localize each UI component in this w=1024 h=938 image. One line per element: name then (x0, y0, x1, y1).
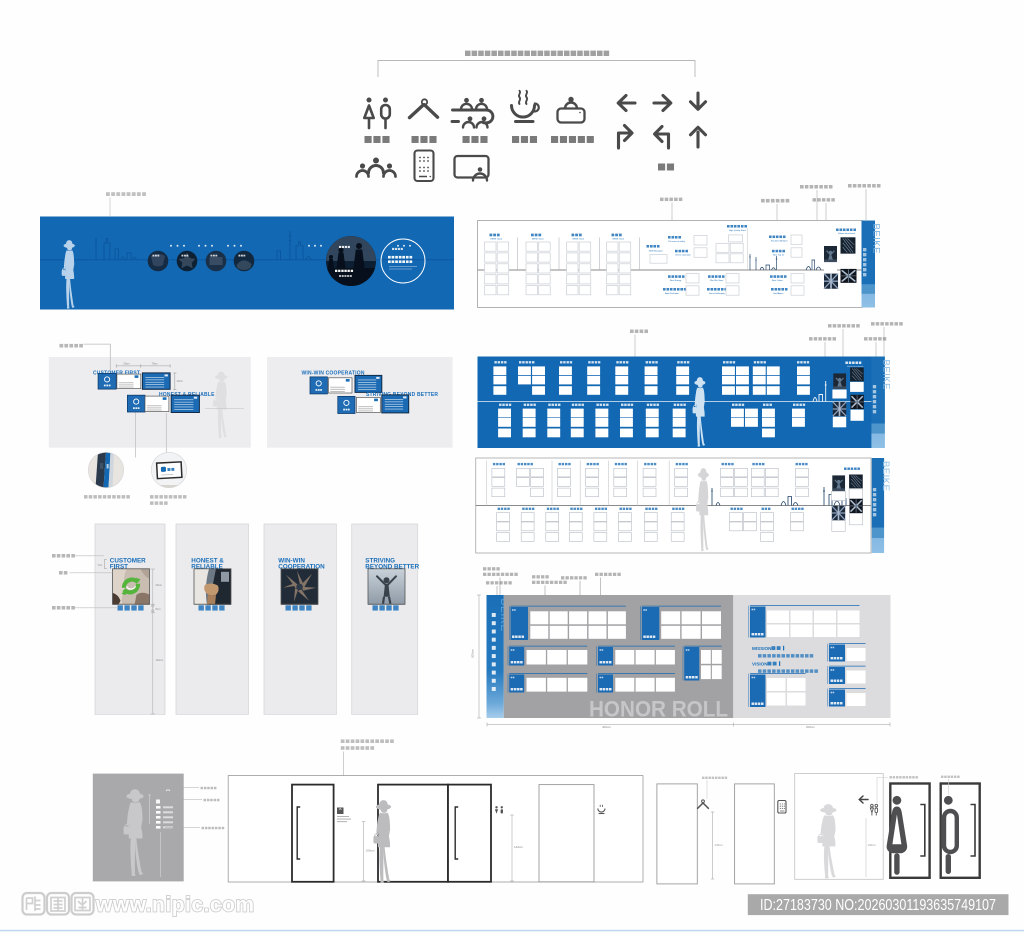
svg-text:www.nipic.com: www.nipic.com (95, 894, 255, 917)
svg-text:7cm: 7cm (98, 564, 103, 567)
svg-text:New Top 10: New Top 10 (773, 255, 785, 257)
svg-text:140cm: 140cm (514, 845, 524, 849)
svg-text:BEIKE: BEIKE (881, 360, 892, 391)
svg-text:Values benchmark: Values benchmark (838, 232, 856, 235)
svg-text:BEIKE Good: BEIKE Good (491, 239, 502, 241)
svg-text:Win Win Store: Win Win Store (710, 279, 724, 282)
svg-text:BEIKE Good: BEIKE Good (573, 239, 584, 241)
svg-text:145cm: 145cm (715, 843, 724, 847)
svg-text:150cm: 150cm (366, 849, 376, 853)
svg-text:5cm: 5cm (155, 607, 161, 611)
svg-text:400cm: 400cm (602, 725, 612, 729)
svg-text:70cm: 70cm (152, 362, 158, 366)
svg-text:The most of ability: The most of ability (668, 240, 686, 243)
svg-text:High Quality Store: High Quality Store (729, 229, 747, 232)
svg-text:Online Operation: Online Operation (675, 254, 692, 257)
svg-text:Well Managed: Well Managed (649, 251, 663, 253)
svg-text:200cm: 200cm (471, 648, 475, 658)
svg-text:Best Online: Best Online (772, 279, 784, 282)
svg-text:40cm: 40cm (177, 379, 183, 383)
svg-text:110cm: 110cm (155, 658, 164, 662)
svg-text:ID:27183730 NO:202603011936357: ID:27183730 NO:20260301193635749107 (760, 897, 996, 914)
svg-text:Excellent Member: Excellent Member (771, 239, 788, 242)
svg-text:Agile Evolution: Agile Evolution (665, 292, 680, 295)
svg-text:HONOR ROLL: HONOR ROLL (589, 697, 728, 722)
svg-text:200cm: 200cm (806, 725, 816, 729)
svg-text:Gold Agent: Gold Agent (773, 292, 784, 295)
svg-text:BEIKE Good: BEIKE Good (532, 239, 543, 241)
svg-text:140cm: 140cm (868, 843, 877, 847)
svg-text:Best Energy: Best Energy (670, 279, 682, 282)
svg-text:Sense Belonging: Sense Belonging (709, 293, 726, 295)
svg-text:BEIKE: BEIKE (880, 461, 891, 492)
svg-text:50cm: 50cm (124, 362, 130, 366)
svg-text:MISSION: MISSION (752, 646, 772, 651)
svg-text:VISION: VISION (752, 662, 768, 667)
svg-text:BEIKE Good: BEIKE Good (613, 239, 624, 241)
svg-text:BEIKE: BEIKE (871, 224, 882, 255)
svg-text:30cm: 30cm (155, 583, 162, 587)
